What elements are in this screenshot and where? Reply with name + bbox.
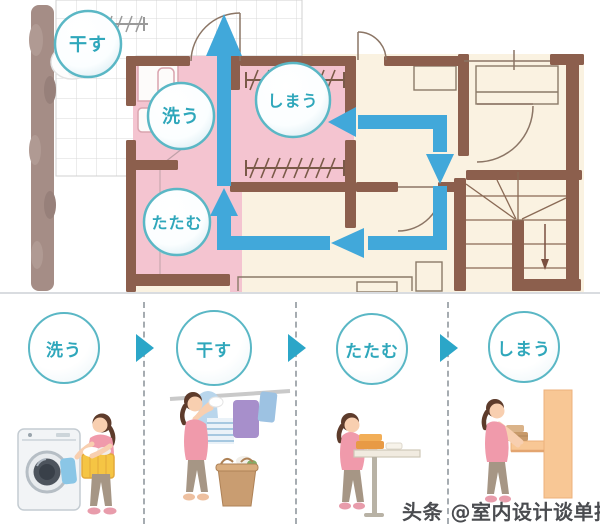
illustration-wash <box>18 414 117 515</box>
plan-label-fold: たたむ <box>144 189 210 255</box>
floor-plan: 干す 洗う しまう たたむ <box>0 0 600 294</box>
watermark-text: 头条 @室内设计谈单技巧 <box>402 496 600 525</box>
plan-label-wash: 洗う <box>148 83 214 149</box>
illustration-dry <box>170 391 290 506</box>
plan-label-dry-text: 干す <box>69 35 107 56</box>
laundry-basket <box>216 456 258 506</box>
plan-label-dry: 干す <box>55 11 121 77</box>
plan-label-wash-text: 洗う <box>162 106 200 128</box>
illustration-store <box>484 390 572 503</box>
screenshot-root: 干す 洗う しまう たたむ 洗う 干す たたむ しまう <box>0 0 600 529</box>
plan-label-fold-text: たたむ <box>151 214 202 233</box>
woman-washing <box>77 414 117 515</box>
hedge <box>29 5 56 291</box>
plan-label-store: しまう <box>256 63 330 137</box>
laundry-steps-strip: 洗う 干す たたむ しまう <box>0 294 600 529</box>
plan-label-store-text: しまう <box>267 92 318 111</box>
step-illustrations <box>0 294 600 529</box>
woman-folding <box>339 413 377 510</box>
